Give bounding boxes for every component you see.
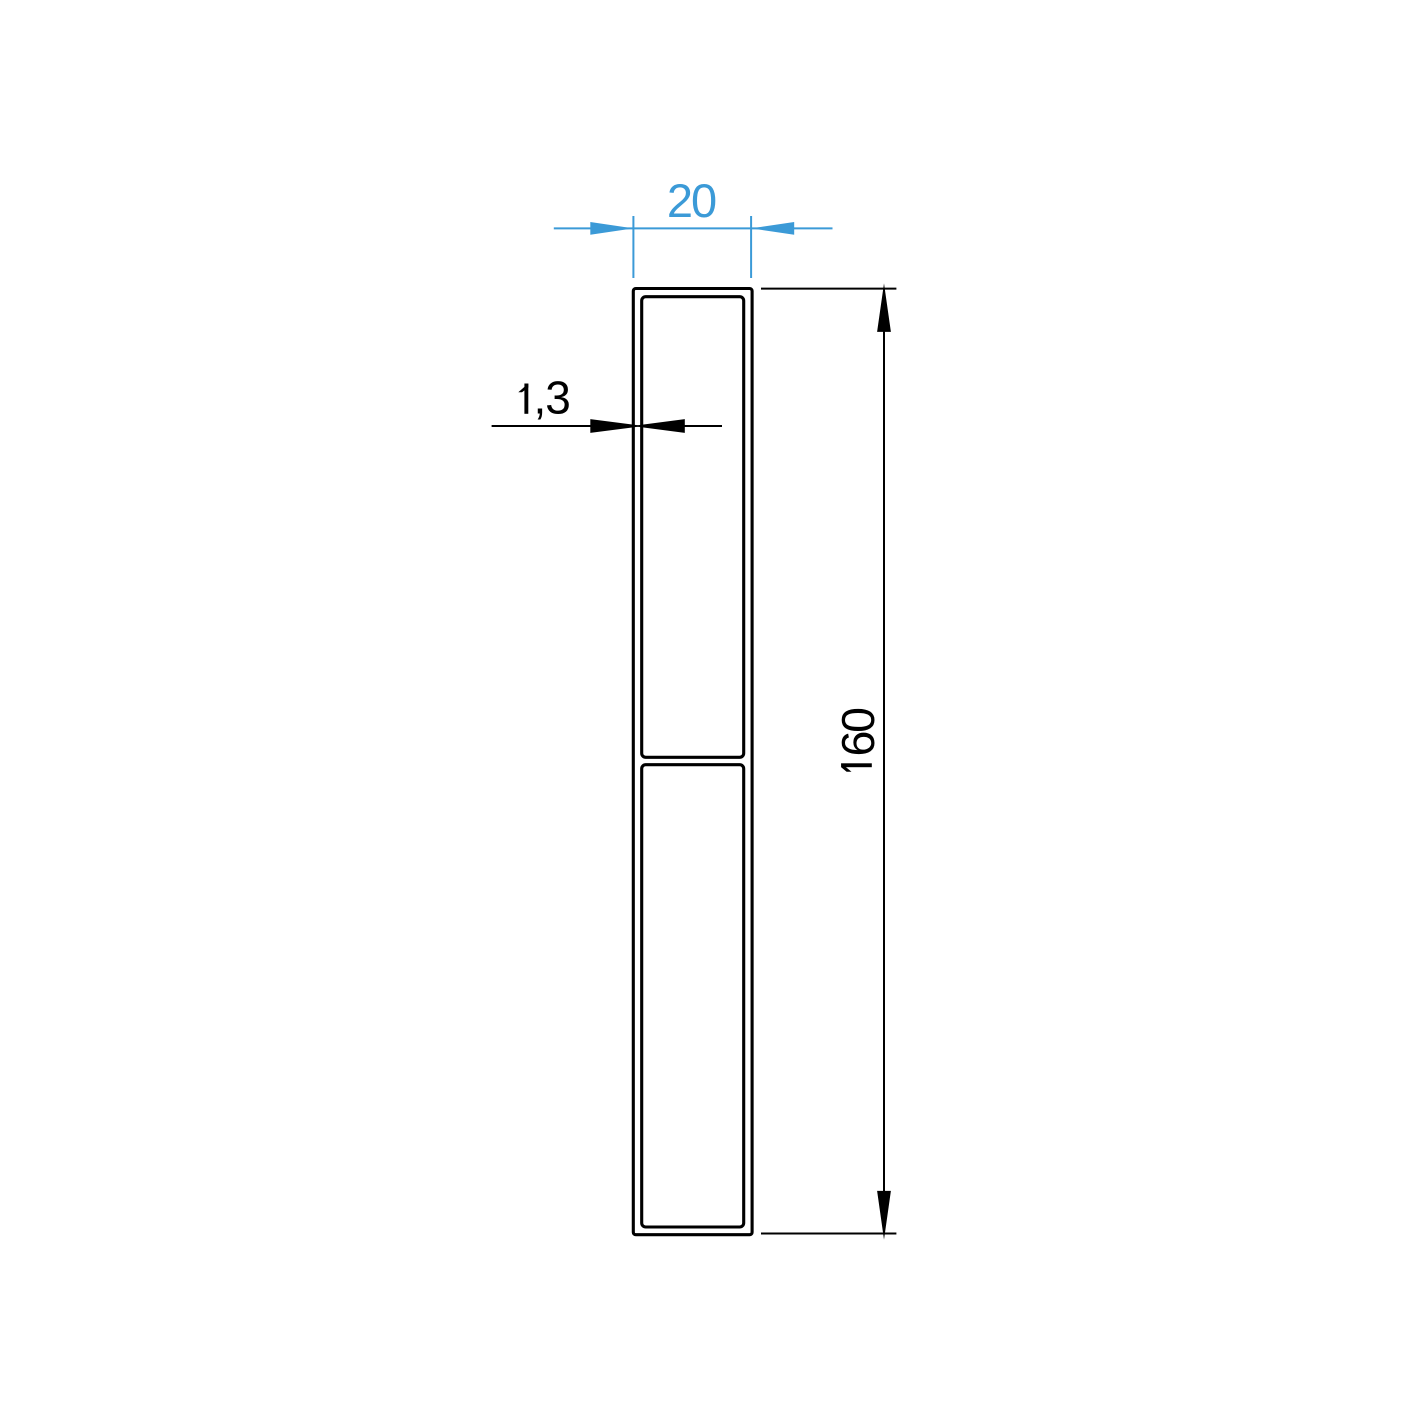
svg-text:6: 6 — [832, 731, 884, 757]
svg-text:0: 0 — [832, 707, 884, 733]
svg-text:20: 20 — [667, 174, 716, 227]
svg-text:,3: ,3 — [534, 372, 570, 424]
